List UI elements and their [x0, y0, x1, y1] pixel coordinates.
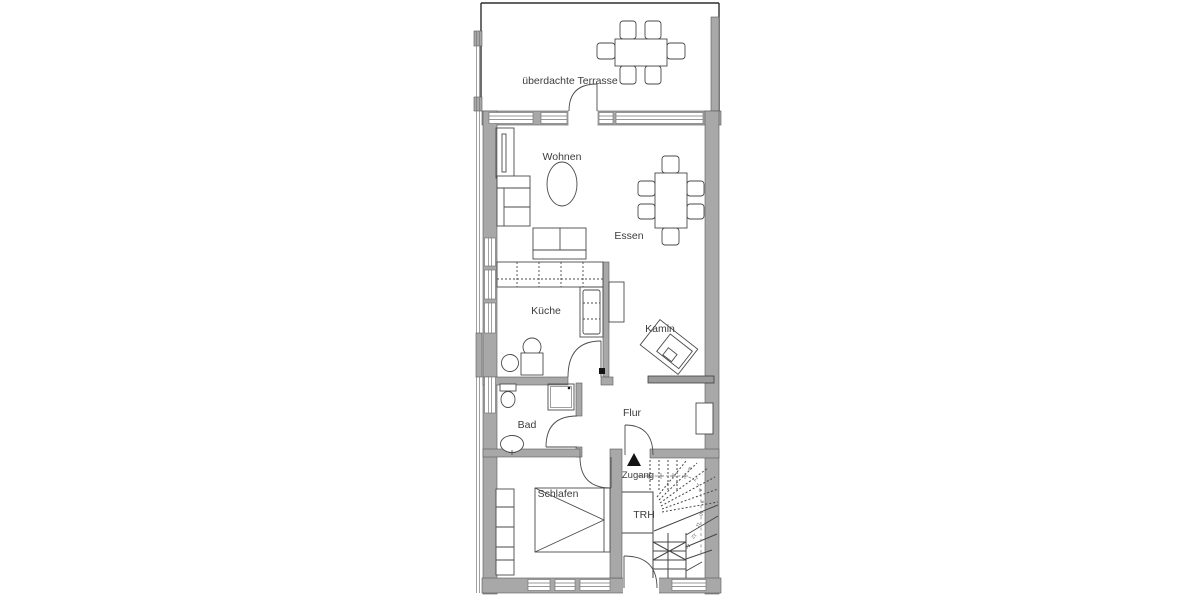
- bedroom-window: [555, 580, 575, 591]
- bedroom-window: [580, 580, 610, 591]
- window: [616, 113, 703, 124]
- stairwell-north-wall: [650, 449, 719, 458]
- room-label-essen: Essen: [614, 230, 643, 242]
- stool: [502, 355, 519, 372]
- sofa: [497, 176, 530, 226]
- window: [485, 303, 496, 333]
- kitchen-sink: [583, 290, 600, 334]
- shower-drain: [568, 387, 571, 390]
- kitchen-table: [521, 353, 543, 375]
- door-swing-arc: [546, 416, 577, 447]
- terrace-door-opening: [569, 111, 598, 127]
- terrace-door: [569, 84, 597, 111]
- room-label-trh: TRH: [633, 509, 655, 521]
- floor-plan: 6 7 8 9 10 11 12 13 überdachte Terrasse …: [0, 0, 1200, 600]
- window: [489, 113, 533, 124]
- wardrobe: [496, 489, 514, 575]
- window: [485, 270, 496, 299]
- washbasin: [501, 436, 524, 453]
- lower-steps: [653, 533, 686, 578]
- bedroom-door: [580, 457, 611, 488]
- neighbor-boundary: [476, 31, 482, 593]
- bathroom-door: [546, 416, 577, 447]
- door-swing-arc: [569, 84, 597, 111]
- door-swing-arc: [568, 341, 601, 377]
- step-number: 7: [693, 476, 699, 482]
- living-room: [496, 128, 586, 259]
- sideboard: [609, 282, 624, 322]
- terrace-table: [615, 39, 667, 66]
- kitchen-east-wall: [603, 262, 609, 377]
- kitchen-door-post: [601, 377, 613, 385]
- step-number: 9: [700, 500, 705, 503]
- floor-plan-canvas: 6 7 8 9 10 11 12 13 überdachte Terrasse …: [0, 0, 1200, 600]
- chair: [645, 66, 661, 84]
- chair: [645, 21, 661, 39]
- chair: [687, 181, 704, 196]
- chair: [638, 181, 655, 196]
- chair: [687, 204, 704, 219]
- room-label-kueche: Küche: [531, 305, 561, 317]
- room-label-zugang: Zugang: [622, 470, 654, 481]
- coffee-table: [547, 162, 577, 206]
- chair: [620, 21, 636, 39]
- step-number: 12: [690, 533, 697, 540]
- neighbor-wall-stub: [474, 31, 482, 46]
- window: [599, 113, 613, 124]
- room-label-schlafen: Schlafen: [538, 488, 579, 500]
- chair: [638, 204, 655, 219]
- kitchen-counter: [497, 262, 603, 287]
- room-label-flur: Flur: [623, 407, 642, 419]
- step-number: 13: [684, 543, 691, 550]
- room-label-bad: Bad: [518, 419, 537, 431]
- step-number: 10: [698, 510, 704, 517]
- tv-board-detail: [502, 134, 506, 172]
- stairwell-west-wall: [610, 449, 622, 578]
- toilet: [501, 392, 515, 408]
- chair: [667, 43, 685, 59]
- hall-door: [625, 425, 653, 455]
- room-label-kamin: Kamin: [645, 323, 675, 335]
- door-swing-arc: [625, 425, 653, 455]
- chair: [662, 156, 679, 173]
- step-number: 8: [698, 488, 704, 493]
- west-wall: [483, 111, 497, 594]
- chair: [620, 66, 636, 84]
- east-wall: [705, 111, 719, 594]
- hall-bedroom-wall: [483, 449, 580, 457]
- entrance-door-opening: [623, 577, 659, 594]
- door-hinge: [599, 368, 605, 374]
- neighbor-wall-stub: [474, 97, 482, 111]
- bathroom: [500, 384, 577, 455]
- dining-table: [655, 173, 687, 228]
- zugang-arrow-icon: [627, 453, 641, 466]
- sofa-2: [533, 228, 586, 259]
- door-swing-arc: [580, 457, 611, 488]
- hall-closet: [696, 403, 713, 434]
- bedroom-window: [528, 580, 550, 591]
- kitchen-door: [568, 341, 605, 377]
- tv-board: [496, 128, 514, 178]
- chair: [662, 228, 679, 245]
- dining-set: [638, 156, 704, 245]
- bath-hall-wall: [576, 383, 582, 416]
- fireplace-wall: [648, 376, 714, 383]
- terrace-side-wall: [711, 17, 719, 111]
- stair-eye: [622, 492, 653, 578]
- window: [672, 580, 706, 591]
- chair: [597, 43, 615, 59]
- toilet-tank: [500, 384, 516, 391]
- window: [541, 113, 567, 124]
- bathroom-window: [485, 377, 496, 413]
- window: [485, 238, 496, 266]
- room-label-terrasse: überdachte Terrasse: [522, 75, 618, 87]
- room-label-wohnen: Wohnen: [543, 151, 582, 163]
- bedroom: [496, 457, 611, 575]
